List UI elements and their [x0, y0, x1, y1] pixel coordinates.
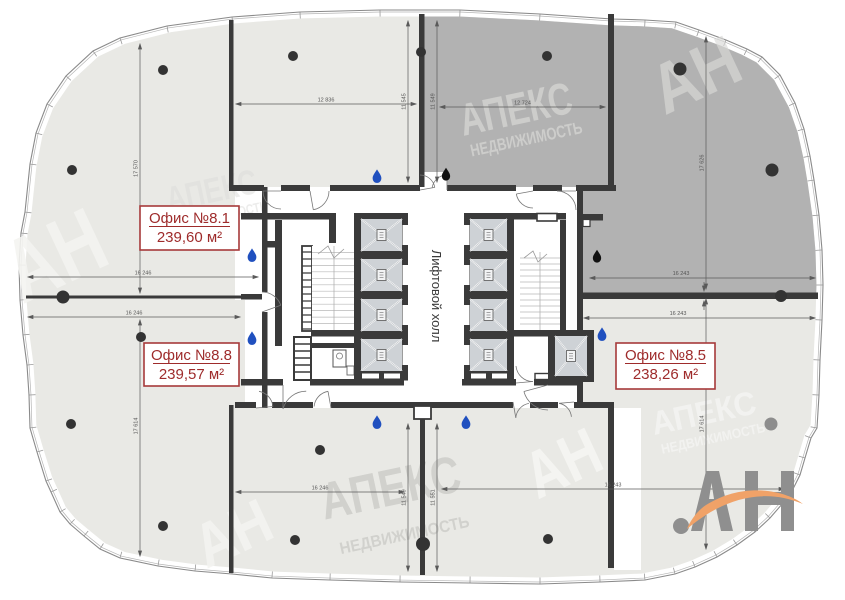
- svg-text:11 545: 11 545: [402, 93, 408, 109]
- svg-text:16 246: 16 246: [312, 486, 329, 492]
- svg-text:17 570: 17 570: [134, 160, 140, 177]
- svg-text:12 836: 12 836: [318, 98, 335, 104]
- svg-text:17 614: 17 614: [700, 416, 706, 433]
- svg-text:11 549: 11 549: [402, 489, 408, 505]
- svg-text:17 614: 17 614: [134, 418, 140, 435]
- svg-text:16 246: 16 246: [126, 311, 143, 317]
- svg-text:16 243: 16 243: [673, 271, 690, 277]
- svg-text:Офис №8.8: Офис №8.8: [151, 347, 232, 364]
- svg-text:11 549: 11 549: [431, 93, 437, 109]
- svg-text:11 551: 11 551: [431, 489, 437, 505]
- svg-text:16 243: 16 243: [605, 483, 622, 489]
- svg-text:16 246: 16 246: [135, 271, 152, 277]
- svg-text:239,60 м²: 239,60 м²: [157, 229, 222, 246]
- svg-text:17 626: 17 626: [700, 155, 706, 172]
- svg-text:Офис №8.1: Офис №8.1: [149, 210, 230, 227]
- svg-text:Лифтовой холл: Лифтовой холл: [429, 250, 444, 343]
- svg-text:238,26 м²: 238,26 м²: [633, 366, 698, 383]
- svg-text:12 724: 12 724: [514, 101, 531, 107]
- svg-text:16 243: 16 243: [670, 311, 687, 317]
- svg-text:239,57 м²: 239,57 м²: [159, 366, 224, 383]
- svg-text:Офис №8.5: Офис №8.5: [625, 347, 706, 364]
